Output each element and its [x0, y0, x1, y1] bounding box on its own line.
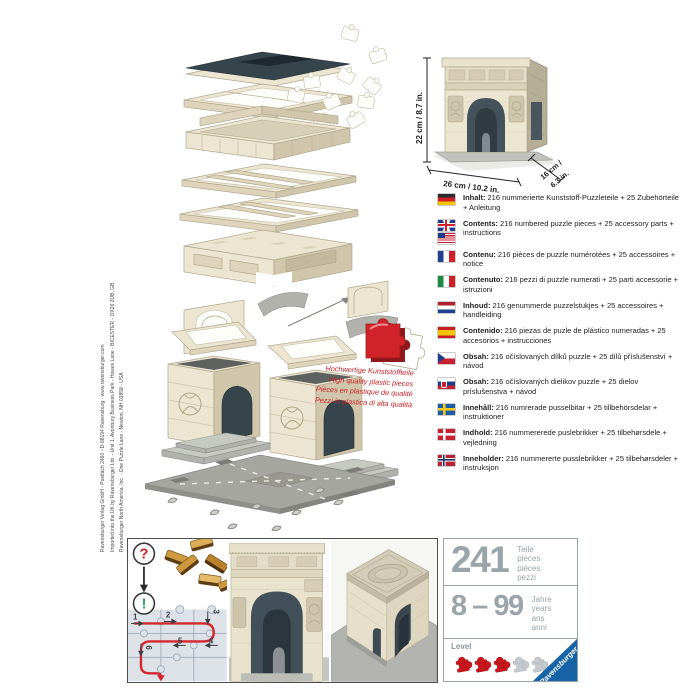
step-number: 2: [166, 610, 171, 619]
level-piece-icon: [491, 656, 511, 673]
roof-layer: [186, 52, 350, 86]
age-label: ans: [532, 614, 552, 623]
contents-row-en: Contents:216 numbered puzzle pieces + 25…: [438, 219, 700, 244]
brand-corner: Ravensburger: [523, 637, 577, 681]
contents-row-cz: Obsah:216 očíslovaných dílků puzzle + 25…: [438, 352, 700, 372]
quality-piece-icon: [352, 308, 430, 370]
contents-label: Obsah:: [463, 352, 489, 361]
level-box: Level Ravensburge: [443, 638, 578, 682]
finished-model-illustration: 22 cm / 8.7 in. 26 cm / 10.2 in. 16 cm /…: [415, 40, 610, 195]
flag-slovakia-icon: [438, 378, 455, 389]
contents-label: Contenuto:: [463, 275, 503, 284]
contents-text: 216 nummerierte Kunststoff-Puzzleteile +…: [463, 193, 679, 212]
contents-row-de: Inhalt:216 nummerierte Kunststoff-Puzzle…: [438, 193, 700, 213]
pieces-label: pieces: [517, 554, 540, 563]
pieces-count: 241: [451, 542, 508, 577]
frame-layer-a: [182, 164, 356, 198]
contents-row-no: Inneholder:216 nummererte pusslebrikker …: [438, 454, 700, 474]
contents-label: Contenu:: [463, 250, 496, 259]
imprint-line: Ravensburger Verlag GmbH - Postfach 2460…: [99, 240, 109, 552]
age-range: 8 – 99: [451, 593, 523, 621]
contents-row-sk: Obsah:216 očíslovaných dielikov puzzle +…: [438, 377, 700, 397]
frame-layer-b: [180, 198, 358, 232]
contents-text: 216 genummerde puzzelstukjes + 25 access…: [463, 301, 663, 320]
contents-label: Inhalt:: [463, 193, 486, 202]
flag-france-icon: [438, 251, 455, 262]
flag-netherlands-icon: [438, 302, 455, 313]
pieces-count-box: 241 Teile pieces pièces pezzi: [443, 538, 578, 586]
assembly-hint-panel: 1 2 3 4 5 6 ? !: [128, 539, 227, 682]
contents-label: Obsah:: [463, 377, 489, 386]
age-range-labels: Jahre years ans anni: [532, 595, 552, 633]
info-column: 241 Teile pieces pièces pezzi 8 – 99 Jah…: [443, 538, 578, 682]
left-leg-layer: [168, 356, 260, 446]
contents-label: Inneholder:: [463, 454, 504, 463]
model-aerial-photo: [331, 539, 437, 682]
age-label: Jahre: [532, 595, 552, 604]
model-front-photo: [229, 539, 330, 682]
parapet-layer: [186, 106, 350, 160]
pieces-label: Teile: [517, 545, 540, 554]
flag-usa-icon: [438, 233, 455, 244]
step-number: 6: [144, 645, 153, 650]
pieces-count-labels: Teile pieces pièces pezzi: [517, 545, 540, 583]
pieces-label: pezzi: [517, 573, 540, 582]
contents-label: Inhoud:: [463, 301, 491, 310]
contents-label: Contents:: [463, 219, 498, 228]
contents-row-se: Innehåll:216 numrerade pusselbitar + 25 …: [438, 403, 700, 423]
contents-label: Indhold:: [463, 428, 493, 437]
height-dimension-label: 22 cm / 8.7 in.: [415, 92, 424, 144]
bottom-panels: 1 2 3 4 5 6 ? !: [127, 538, 438, 683]
flag-denmark-icon: [438, 429, 455, 440]
question-mark: ?: [139, 546, 148, 563]
age-range-box: 8 – 99 Jahre years ans anni: [443, 585, 578, 639]
flag-spain-icon: [438, 327, 455, 338]
contents-row-nl: Inhoud:216 genummerde puzzelstukjes + 25…: [438, 301, 700, 321]
age-label: anni: [532, 623, 552, 632]
exclamation-mark: !: [141, 596, 146, 613]
height-dimension: [423, 58, 431, 162]
step-number: 3: [212, 610, 221, 615]
contents-row-it: Contenuto:216 pezzi di puzzle numerati +…: [438, 275, 700, 295]
level-piece-icon: [453, 656, 473, 673]
contents-row-dk: Indhold:216 nummererede puslebrikker + 2…: [438, 428, 700, 448]
contents-list: Inhalt:216 nummerierte Kunststoff-Puzzle…: [438, 193, 700, 473]
arc-model: [435, 58, 553, 162]
contents-label: Innehåll:: [463, 403, 494, 412]
flag-germany-icon: [438, 194, 455, 205]
level-piece-icon: [472, 656, 492, 673]
attic-block-layer: [184, 230, 352, 286]
contents-text: 216 očíslovaných dielikov puzzle + 25 di…: [463, 377, 638, 396]
flag-czech-icon: [438, 353, 455, 364]
step-number: 1: [133, 612, 138, 621]
contents-text: 216 nummererede puslebrikker + 25 tilbeh…: [463, 428, 667, 447]
pieces-label: pièces: [517, 564, 540, 573]
puzzle-box-back: Ravensburger Verlag GmbH - Postfach 2460…: [0, 0, 700, 700]
quality-note: Hochwertige Kunststoffteile High quality…: [282, 362, 414, 411]
contents-text: 216 očíslovaných dílků puzzle + 25 dílů …: [463, 352, 672, 371]
age-label: years: [532, 604, 552, 613]
flag-sweden-icon: [438, 404, 455, 415]
flag-italy-icon: [438, 276, 455, 287]
flag-uk-icon: [438, 220, 455, 231]
contents-row-fr: Contenu:216 pièces de puzzle numérotées …: [438, 250, 700, 270]
contents-label: Contenido:: [463, 326, 503, 335]
step-number: 5: [178, 636, 183, 645]
contents-row-es: Contenido:216 piezas de puzle de plástic…: [438, 326, 700, 346]
flag-norway-icon: [438, 455, 455, 466]
exploded-view-diagram: [110, 22, 410, 542]
